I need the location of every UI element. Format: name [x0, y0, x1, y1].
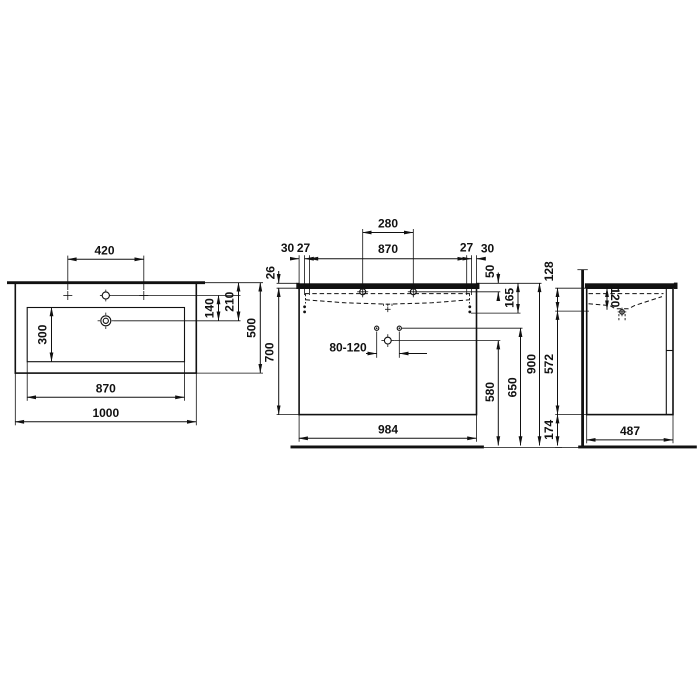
dim-top-bowl-width: 870: [96, 382, 116, 396]
dim-side-bowl-inner-depth: 120: [608, 287, 622, 307]
drain-side-icon: [618, 308, 627, 322]
dim-side-floor-clearance: 174: [542, 419, 556, 439]
dim-front-edge-right: 30: [481, 242, 495, 256]
floor-line-front: [291, 446, 484, 449]
dim-front-cabinet-height: 700: [263, 342, 277, 362]
dim-front-edge-left: 30: [281, 241, 295, 255]
dim-top-tap-to-drain: 140: [203, 298, 217, 318]
dim-front-tap-distance: 280: [378, 217, 398, 231]
tap-position-marker-left: [63, 291, 72, 300]
floor-line-side: [578, 446, 697, 449]
dim-front-inset-right: 27: [460, 241, 474, 255]
dim-top-total-width: 1000: [92, 406, 119, 420]
top-view: 420 140 210 300 500 870 1000: [7, 244, 263, 426]
dim-top-back-to-drain: 210: [223, 291, 237, 311]
dim-side-front-height: 128: [542, 261, 556, 281]
dim-top-total-depth: 500: [244, 318, 258, 338]
dim-front-overflow-depth: 165: [503, 288, 517, 308]
dimension-drawing: 420 140 210 300 500 870 1000: [0, 0, 700, 700]
dim-front-cabinet-width: 984: [378, 422, 398, 436]
dim-front-tap-height: 50: [483, 264, 497, 278]
dim-front-inset-left: 27: [297, 241, 311, 255]
dim-front-siphon-height: 580: [483, 382, 497, 402]
drain-icon: [98, 313, 114, 329]
dim-front-bowl-width: 870: [378, 242, 398, 256]
dim-top-tap-spacing: 420: [94, 244, 114, 258]
tap-hole-icon: [100, 290, 112, 302]
drain-marks-front: [384, 304, 392, 313]
dim-front-siphon-range: 80-120: [329, 341, 367, 355]
front-view: 280 30 27 870 27 30 26 700 50 165: [263, 217, 562, 449]
drawing-page: 420 140 210 300 500 870 1000: [0, 0, 700, 700]
dim-side-cabinet-height: 572: [542, 354, 556, 374]
dim-side-cabinet-depth: 487: [620, 424, 640, 438]
siphon-icon: [381, 334, 394, 347]
dim-top-bowl-depth: 300: [36, 324, 50, 344]
side-view: 120 128 572 174 487: [542, 261, 697, 448]
dim-front-fixing-height: 650: [505, 377, 519, 397]
cabinet-side: [587, 288, 673, 414]
dim-front-worktop-thickness: 26: [264, 266, 278, 280]
dim-front-total-height: 900: [524, 354, 538, 374]
